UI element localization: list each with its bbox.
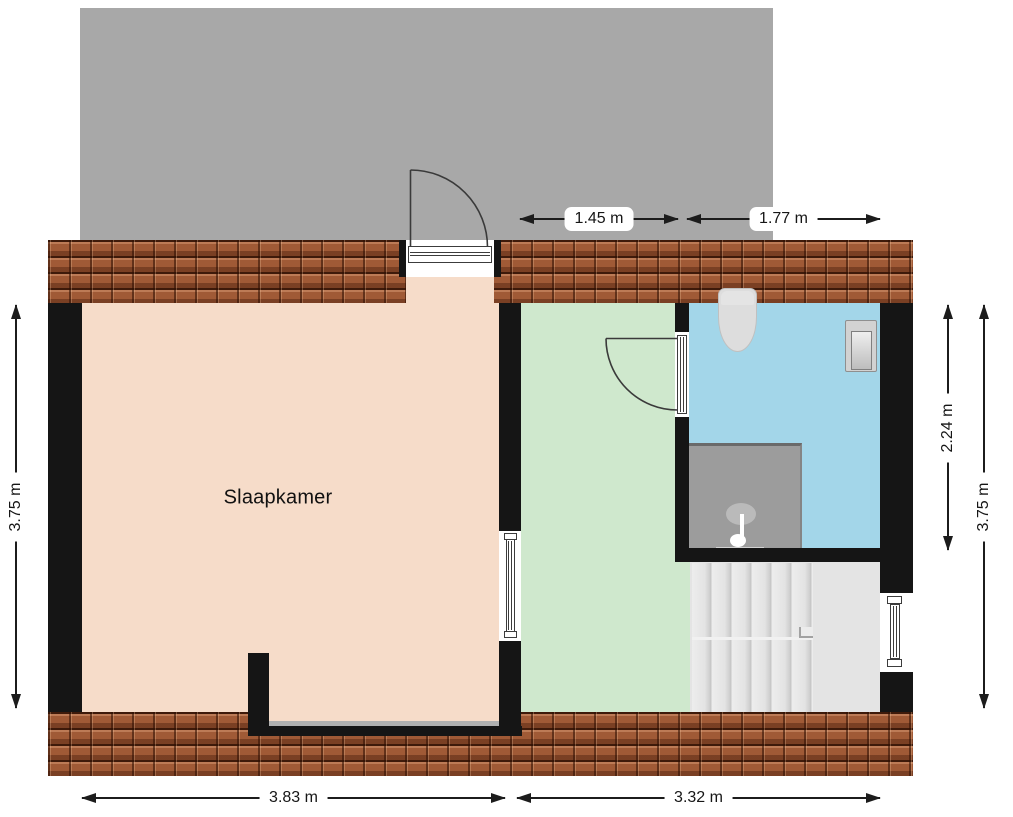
toilet-tank-icon bbox=[721, 291, 754, 305]
interior-window-lines bbox=[508, 541, 512, 630]
arrowhead-up-icon bbox=[943, 304, 953, 319]
room-label-bedroom: Slaapkamer bbox=[224, 487, 333, 510]
interior-window-cap-bottom bbox=[504, 631, 517, 638]
arrowhead-up-icon bbox=[979, 304, 989, 319]
arrowhead-left-icon bbox=[686, 214, 701, 224]
arrowhead-down-icon bbox=[11, 694, 21, 709]
stairs-step-notch bbox=[799, 627, 813, 638]
exterior-window-cap-top bbox=[887, 596, 902, 604]
stairs-treads-upper bbox=[692, 563, 813, 637]
shower-head-icon bbox=[730, 534, 746, 547]
exterior-doorway-cap-right bbox=[494, 240, 501, 277]
wall-nook-vertical bbox=[248, 653, 269, 736]
dimension-label: 2.24 m bbox=[936, 393, 960, 462]
dimension-label: 3.83 m bbox=[259, 786, 328, 810]
wall-divider-upper bbox=[499, 303, 521, 531]
arrowhead-right-icon bbox=[866, 793, 881, 803]
arrowhead-down-icon bbox=[979, 694, 989, 709]
arrowhead-right-icon bbox=[866, 214, 881, 224]
wall-right-upper bbox=[880, 303, 913, 593]
wall-nook-bottom bbox=[268, 726, 522, 736]
upper-floor-outline bbox=[80, 8, 773, 240]
exterior-doorway-cap-left bbox=[399, 240, 406, 277]
dimension-label: 3.75 m bbox=[4, 472, 28, 541]
floor-plan: Slaapkamer 1.45 m 1.77 m 3.75 m 2.24 m 3… bbox=[0, 0, 1013, 817]
exterior-door-frame-lines bbox=[410, 252, 490, 256]
exterior-window-lines bbox=[893, 606, 897, 657]
arrowhead-right-icon bbox=[664, 214, 679, 224]
exterior-window-cap-bottom bbox=[887, 659, 902, 667]
dimension-label: 3.32 m bbox=[664, 786, 733, 810]
bedroom-floor-extension bbox=[269, 712, 500, 721]
arrowhead-left-icon bbox=[81, 793, 96, 803]
dimension-label: 1.45 m bbox=[565, 207, 634, 231]
wall-bathroom-left-lower bbox=[675, 417, 689, 548]
arrowhead-left-icon bbox=[519, 214, 534, 224]
dimension-label: 1.77 m bbox=[749, 207, 818, 231]
stairs-treads-lower bbox=[692, 640, 813, 712]
arrowhead-right-icon bbox=[491, 793, 506, 803]
bedroom-floor-door-recess bbox=[406, 277, 494, 303]
arrowhead-left-icon bbox=[516, 793, 531, 803]
wall-bathroom-left-upper bbox=[675, 303, 689, 332]
interior-door-frame-lines bbox=[680, 337, 684, 412]
wall-left bbox=[48, 303, 82, 712]
wall-bathroom-bottom bbox=[675, 548, 880, 562]
shower-tray bbox=[689, 443, 802, 548]
arrowhead-down-icon bbox=[943, 536, 953, 551]
landing-floor bbox=[521, 303, 690, 712]
dimension-label: 3.75 m bbox=[972, 472, 996, 541]
wall-divider-lower bbox=[499, 641, 521, 736]
arrowhead-up-icon bbox=[11, 304, 21, 319]
sink-basin-icon bbox=[851, 331, 872, 370]
wall-right-lower bbox=[880, 672, 913, 712]
